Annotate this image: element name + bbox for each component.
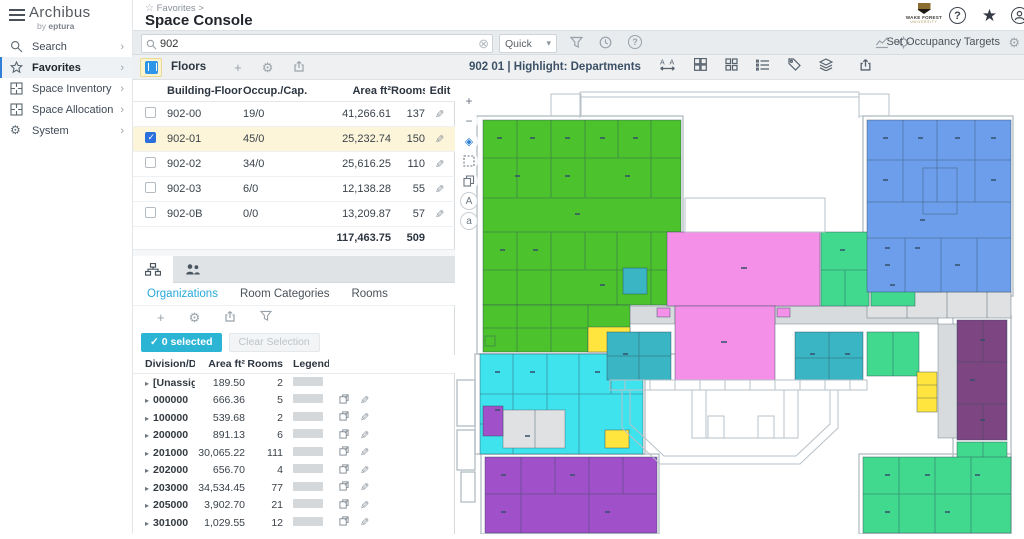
division-row[interactable]: ▸100000 539.68 2 ✎	[133, 409, 455, 427]
history-clock-icon[interactable]	[599, 36, 612, 49]
legend-swatch	[293, 499, 323, 508]
sidebar-item-favorites[interactable]: Favorites ›	[0, 57, 133, 78]
legend-swatch	[293, 447, 323, 456]
add-icon[interactable]: +	[157, 311, 165, 324]
legend-swatch	[293, 394, 323, 403]
edit-pencil-icon[interactable]: ✎	[360, 411, 369, 424]
tab-organizations-icon[interactable]	[133, 256, 173, 283]
add-icon[interactable]: +	[234, 61, 242, 74]
list-icon[interactable]	[756, 58, 770, 76]
popout-icon[interactable]	[339, 482, 349, 494]
zoom-in-icon[interactable]: +	[460, 92, 478, 110]
floor-row[interactable]: 902-03 6/0 12,138.28 55 ✎	[133, 177, 455, 202]
expand-caret-icon[interactable]: ▸	[145, 379, 149, 388]
division-row[interactable]: ▸201000 30,065.22 111 ✎	[133, 444, 455, 462]
plan-zoom-toolbar: + − ◈ A a	[460, 92, 480, 232]
menu-icon[interactable]	[9, 9, 25, 21]
floor-row[interactable]: 902-02 34/0 25,616.25 110 ✎	[133, 152, 455, 177]
sidebar-item-system[interactable]: ⚙ System ›	[0, 120, 133, 141]
division-row[interactable]: ▸205000 3,902.70 21 ✎	[133, 497, 455, 515]
edit-pencil-icon[interactable]: ✎	[360, 464, 369, 477]
organization-logo: WAKE FOREST UNIVERSITY	[901, 3, 947, 27]
edit-pencil-icon[interactable]: ✎	[360, 394, 369, 407]
tag-icon[interactable]	[788, 58, 801, 76]
row-checkbox[interactable]	[145, 132, 156, 143]
org-table-header: Division/Department Area ft² Rooms Legen…	[133, 355, 455, 374]
expand-caret-icon[interactable]: ▸	[145, 466, 149, 475]
fit-view-icon[interactable]: ◈	[460, 132, 478, 150]
floorplan-title: 902 01 | Highlight: Departments	[469, 61, 641, 73]
star-icon	[10, 61, 23, 74]
measure-icon[interactable]: AA	[659, 58, 676, 76]
edit-pencil-icon[interactable]: ✎	[360, 446, 369, 459]
row-checkbox[interactable]	[145, 157, 156, 168]
edit-pencil-icon[interactable]: ✎	[360, 429, 369, 442]
division-row[interactable]: ▸203000 34,534.45 77 ✎	[133, 479, 455, 497]
search-input[interactable]	[160, 35, 470, 52]
popout-icon[interactable]	[339, 517, 349, 529]
floors-panel-title: Floors	[171, 61, 206, 73]
svg-text:A: A	[669, 60, 674, 67]
gear-icon: ⚙	[10, 124, 23, 137]
chevron-right-icon: ›	[120, 125, 124, 137]
decrease-text-icon[interactable]: a	[460, 212, 478, 230]
tab-rooms[interactable]: Rooms	[351, 288, 387, 300]
clear-search-icon[interactable]: ⊗	[478, 36, 489, 52]
floorplan-icon	[10, 82, 23, 95]
help-icon[interactable]: ?	[628, 35, 642, 49]
popout-icon[interactable]	[339, 395, 349, 407]
left-panel: Floors + ⚙ Building-Floor Occup./Cap. Ar…	[133, 55, 455, 534]
legend-swatch	[293, 377, 323, 386]
legend-swatch	[293, 429, 323, 438]
edit-pencil-icon[interactable]: ✎	[435, 208, 444, 221]
export-icon[interactable]	[859, 58, 872, 76]
app-logo-sub: by eptura	[37, 21, 74, 31]
row-checkbox[interactable]	[145, 107, 156, 118]
floorplan-icon	[10, 103, 23, 116]
expand-caret-icon[interactable]: ▸	[145, 501, 149, 510]
chevron-right-icon: ›	[120, 83, 124, 95]
floorplan-viewport[interactable]: + − ◈ A a	[455, 80, 1024, 534]
highlight-grid-icon[interactable]	[694, 58, 707, 76]
search-icon	[146, 39, 157, 50]
filter-icon[interactable]	[570, 36, 583, 49]
app-logo: Archibus	[29, 4, 91, 21]
search-icon	[10, 40, 23, 53]
expand-caret-icon[interactable]: ▸	[145, 519, 149, 528]
row-checkbox[interactable]	[145, 207, 156, 218]
edit-pencil-icon[interactable]: ✎	[435, 158, 444, 171]
org-subtabs: Organizations Room Categories Rooms	[133, 283, 455, 306]
app-sidebar: Archibus by eptura Search › Favorites › …	[0, 0, 133, 534]
favorites-star-icon[interactable]: ★	[981, 7, 998, 24]
selection-bar: ✓ 0 selected Clear Selection	[133, 329, 455, 355]
total-area: 117,463.75	[311, 232, 391, 244]
tab-people-icon[interactable]	[173, 256, 213, 283]
floor-row[interactable]: 902-0B 0/0 13,209.87 57 ✎	[133, 202, 455, 227]
search-box: ⊗	[141, 34, 493, 53]
chevron-right-icon: ›	[120, 104, 124, 116]
floors-table: 902-00 19/0 41,266.61 137 ✎ 902-01 45/0 …	[133, 102, 455, 227]
sidebar-item-space-inventory[interactable]: Space Inventory ›	[0, 78, 133, 99]
popout-icon[interactable]	[339, 500, 349, 512]
gear-icon[interactable]: ⚙	[189, 311, 201, 324]
org-toolbar: + ⚙	[133, 306, 455, 328]
total-rooms: 509	[391, 232, 425, 244]
popout-icon[interactable]	[339, 447, 349, 459]
increase-text-icon[interactable]: A	[460, 192, 478, 210]
expand-caret-icon[interactable]: ▸	[145, 414, 149, 423]
floors-panel-header: Floors + ⚙	[133, 55, 455, 80]
sidebar-item-search[interactable]: Search ›	[0, 36, 133, 57]
copy-view-icon[interactable]	[460, 172, 478, 190]
edit-pencil-icon[interactable]: ✎	[435, 183, 444, 196]
popout-icon[interactable]	[339, 465, 349, 477]
export-icon[interactable]	[224, 310, 236, 324]
expand-caret-icon[interactable]: ▸	[145, 431, 149, 440]
account-icon[interactable]	[1011, 7, 1024, 24]
legend-swatch	[293, 464, 323, 473]
popout-icon[interactable]	[339, 412, 349, 424]
top-header: ☆ Favorites > Space Console WAKE FOREST …	[133, 0, 1024, 30]
main-toolbar: ⊗ Quick ▾ ? Set Occupancy Targets ⚙	[133, 30, 1024, 55]
edit-pencil-icon[interactable]: ✎	[435, 133, 444, 146]
row-checkbox[interactable]	[145, 182, 156, 193]
layers-icon[interactable]	[819, 58, 833, 76]
expand-caret-icon[interactable]: ▸	[145, 449, 149, 458]
svg-text:A: A	[660, 60, 665, 67]
legend-swatch	[293, 517, 323, 526]
sidebar-item-space-allocation[interactable]: Space Allocation ›	[0, 99, 133, 120]
org-table: ▸[Unassigned] 189.50 2 ✎ ▸000000 666.36 …	[133, 374, 455, 534]
tab-organizations[interactable]: Organizations	[147, 288, 218, 300]
people-icon	[185, 263, 201, 276]
chevron-right-icon: ›	[120, 41, 124, 53]
floor-row[interactable]: 902-01 45/0 25,232.74 150 ✎	[133, 127, 455, 152]
clear-selection-button[interactable]: Clear Selection	[229, 333, 320, 352]
floors-total-row: 117,463.75 509	[133, 227, 455, 250]
page-title: Space Console	[145, 12, 253, 29]
chevron-right-icon: ›	[120, 62, 124, 74]
gear-icon[interactable]: ⚙	[1008, 36, 1020, 49]
division-row[interactable]: ▸202000 656.70 4 ✎	[133, 462, 455, 480]
grid-outline-icon[interactable]	[725, 58, 738, 76]
division-row[interactable]: ▸[Unassigned] 189.50 2 ✎	[133, 374, 455, 392]
help-icon[interactable]: ?	[949, 7, 966, 24]
edit-pencil-icon[interactable]: ✎	[360, 499, 369, 512]
filter-icon[interactable]	[260, 310, 272, 324]
floor-row[interactable]: 902-00 19/0 41,266.61 137 ✎	[133, 102, 455, 127]
export-icon[interactable]	[293, 60, 305, 74]
gear-icon[interactable]: ⚙	[262, 61, 274, 74]
division-row[interactable]: ▸000000 666.36 5 ✎	[133, 392, 455, 410]
division-row[interactable]: ▸301000 1,029.55 12 ✎	[133, 514, 455, 532]
expand-caret-icon[interactable]: ▸	[145, 396, 149, 405]
edit-pencil-icon[interactable]: ✎	[360, 481, 369, 494]
legend-swatch	[293, 482, 323, 491]
shield-icon	[918, 3, 931, 14]
zoom-out-icon[interactable]: −	[460, 112, 478, 130]
floor-plan-canvas[interactable]	[455, 80, 1024, 534]
popout-icon[interactable]	[339, 430, 349, 442]
edit-pencil-icon[interactable]: ✎	[435, 108, 444, 121]
lower-tabstrip	[133, 256, 455, 283]
expand-caret-icon[interactable]: ▸	[145, 484, 149, 493]
org-chart-icon	[145, 263, 161, 276]
floorplan-header: 902 01 | Highlight: Departments AA	[455, 55, 1024, 80]
division-row[interactable]: ▸200000 891.13 6 ✎	[133, 427, 455, 445]
tab-room-categories[interactable]: Room Categories	[240, 288, 329, 300]
selected-count-button[interactable]: ✓ 0 selected	[141, 333, 222, 352]
marquee-select-icon[interactable]	[460, 152, 478, 170]
legend-swatch	[293, 412, 323, 421]
floors-table-header: Building-Floor Occup./Cap. Area ft² Room…	[133, 80, 455, 102]
chevron-down-icon: ▾	[546, 38, 551, 49]
set-occupancy-targets-button[interactable]: Set Occupancy Targets	[886, 36, 1000, 48]
quick-search-select[interactable]: Quick ▾	[499, 34, 557, 53]
floors-badge-icon[interactable]	[140, 58, 162, 77]
floorplan-panel: 902 01 | Highlight: Departments AA + − ◈	[455, 55, 1024, 534]
edit-pencil-icon[interactable]: ✎	[360, 516, 369, 529]
